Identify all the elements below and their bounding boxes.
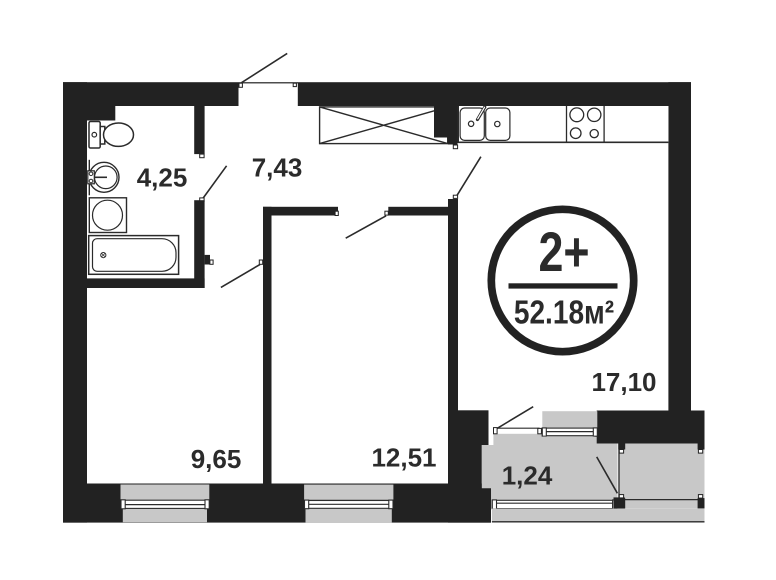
svg-text:4,25: 4,25: [137, 163, 188, 193]
svg-text:2+: 2+: [538, 220, 589, 283]
svg-text:12,51: 12,51: [371, 443, 436, 473]
svg-text:52.18м²: 52.18м²: [514, 294, 614, 331]
svg-text:9,65: 9,65: [191, 444, 242, 474]
svg-text:1,24: 1,24: [502, 461, 553, 491]
svg-text:17,10: 17,10: [591, 367, 656, 397]
svg-text:7,43: 7,43: [252, 153, 303, 183]
